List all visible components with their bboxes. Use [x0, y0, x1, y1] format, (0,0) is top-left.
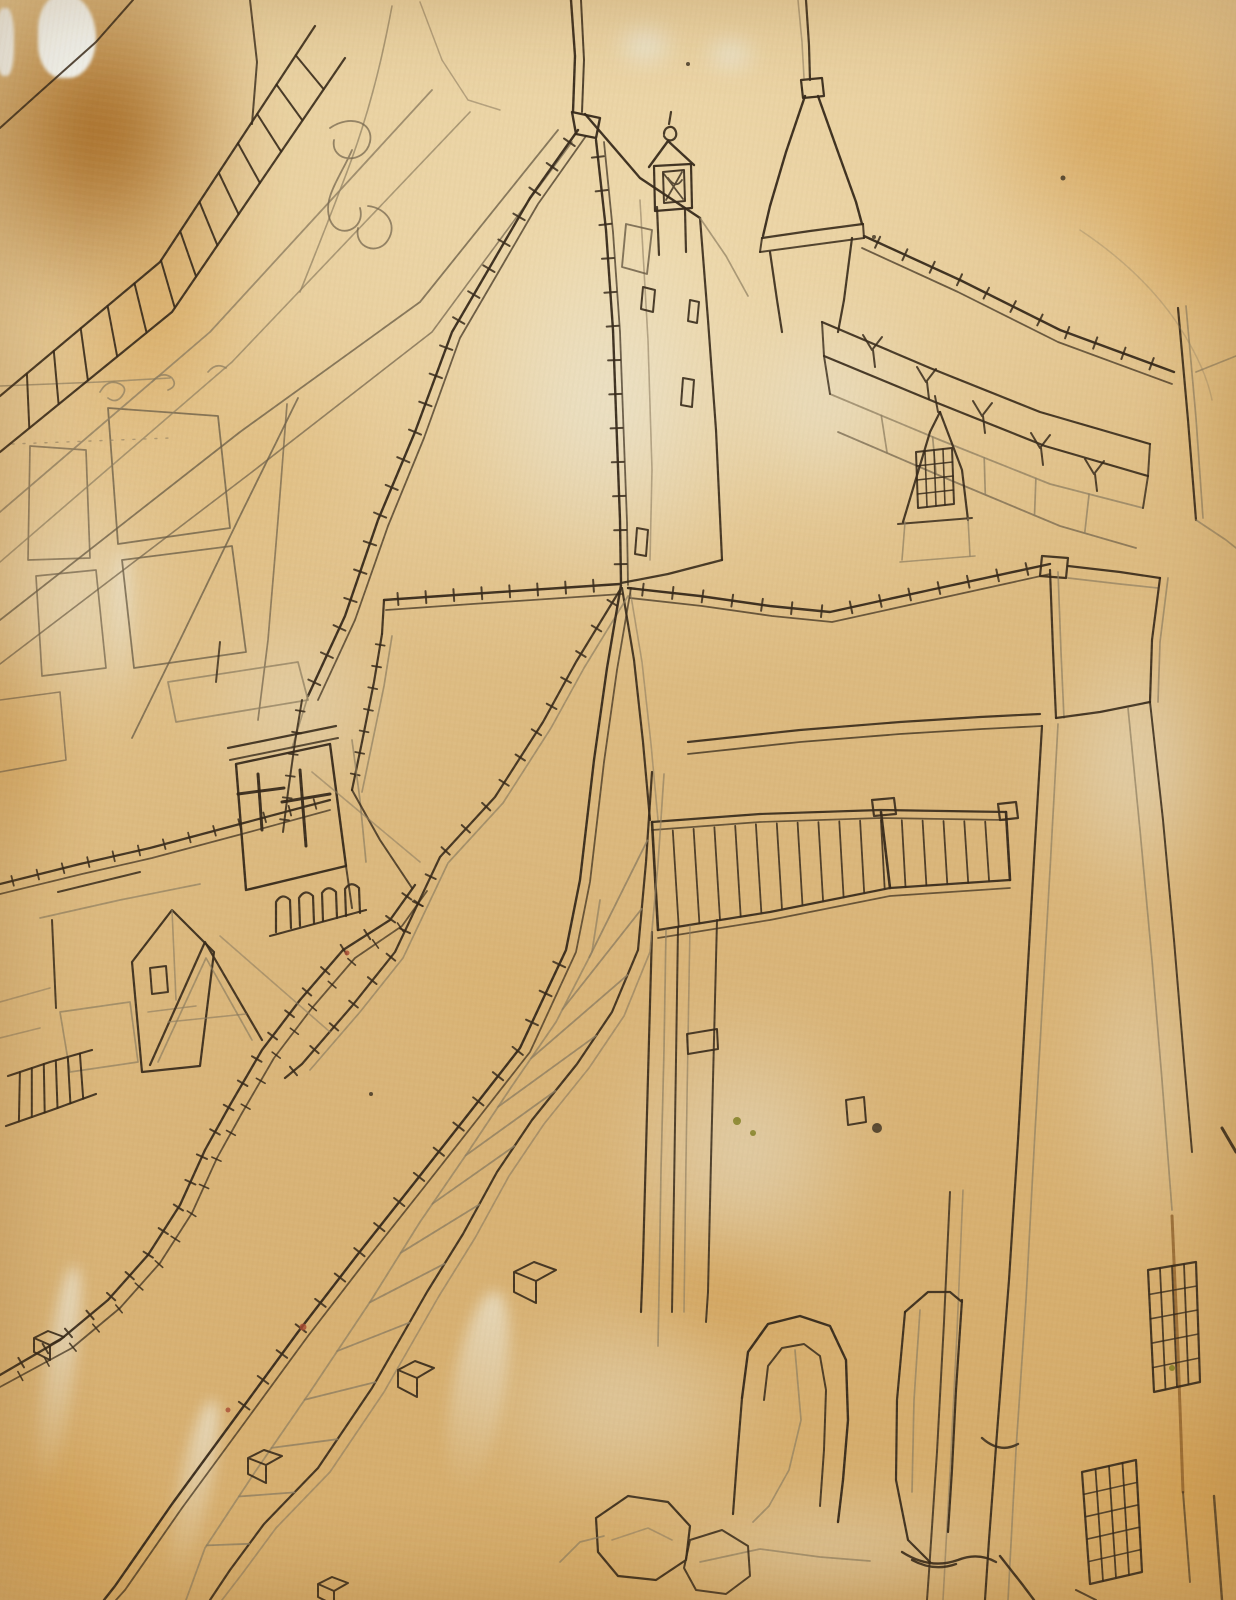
hatched-band	[104, 585, 664, 1600]
dormer	[898, 396, 975, 562]
paint-chips	[8, 524, 1016, 1492]
conical-spire	[700, 0, 864, 332]
church	[168, 642, 366, 936]
left-houses	[0, 799, 330, 1126]
stone-arch	[700, 1316, 870, 1562]
roof-lantern-turret	[649, 112, 694, 255]
top-left-ladder-roof	[0, 0, 572, 664]
street-left-wall	[641, 920, 718, 1346]
central-tower	[292, 0, 722, 748]
balustrade	[652, 798, 1018, 938]
specks	[226, 62, 1176, 1413]
boulders	[560, 1496, 750, 1594]
middle-ridge	[351, 556, 1160, 792]
right-roof-ridges	[822, 230, 1236, 548]
left-plots	[0, 366, 298, 772]
band-A	[0, 790, 427, 1387]
artwork-sketch-town-aerial	[0, 0, 1236, 1600]
drawing-lines	[0, 0, 1236, 1600]
band-45	[285, 590, 628, 1078]
chimneys	[34, 1262, 556, 1600]
right-panel	[1050, 570, 1236, 1600]
